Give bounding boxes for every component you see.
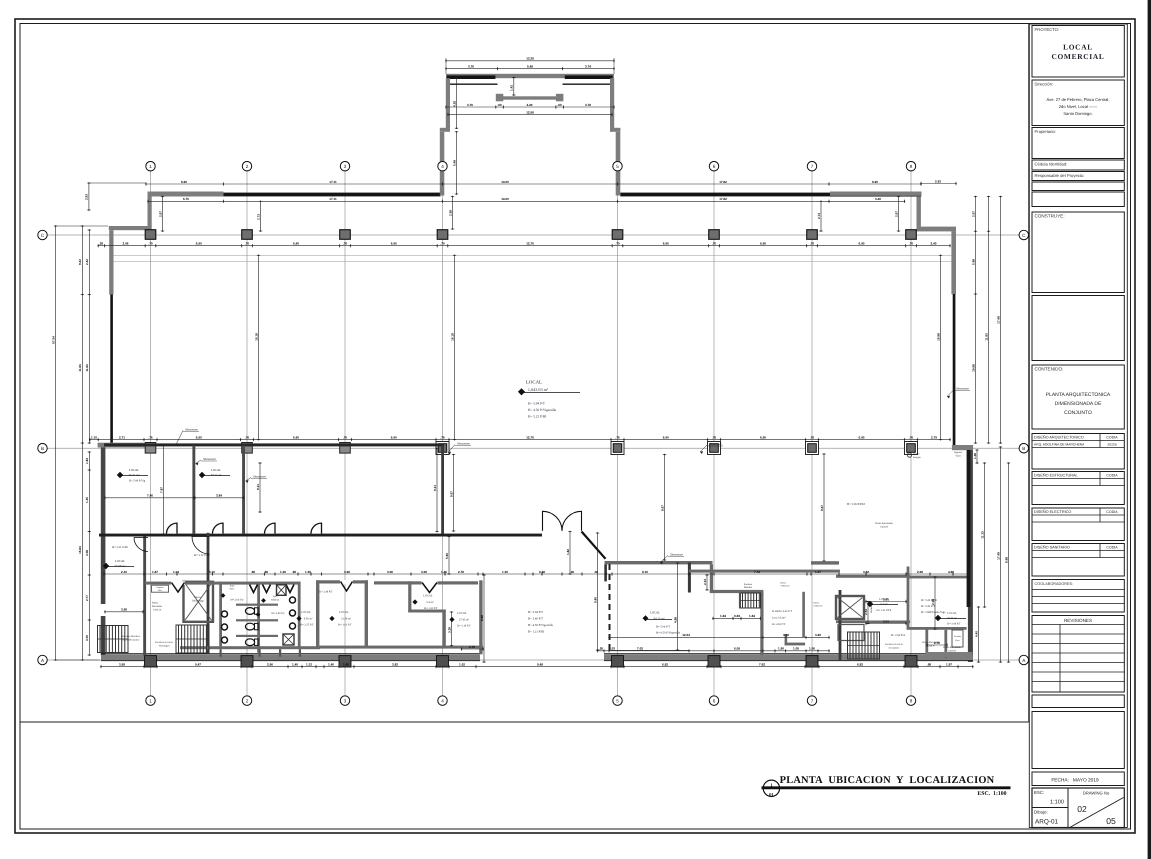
svg-text:.60: .60 xyxy=(557,103,562,107)
svg-text:36.31 m²: 36.31 m² xyxy=(129,473,140,477)
svg-text:8.20: 8.20 xyxy=(181,180,187,184)
svg-text:H= 1.21 P/FE: H= 1.21 P/FE xyxy=(877,609,892,612)
svg-text:CONJUNTO: CONJUNTO xyxy=(1064,410,1092,416)
svg-text:Elect: Elect xyxy=(955,639,960,642)
svg-text:H= 5.04 P/T: H= 5.04 P/T xyxy=(528,610,543,614)
svg-text:1,043.93 m²: 1,043.93 m² xyxy=(528,387,549,392)
svg-text:9.80: 9.80 xyxy=(593,597,597,603)
svg-text:FECHA: MAYO 2019: FECHA: MAYO 2019 xyxy=(1051,777,1099,783)
svg-text:6.90: 6.90 xyxy=(391,435,397,439)
svg-text:2.67: 2.67 xyxy=(971,211,975,217)
svg-text:DRAWING No: DRAWING No xyxy=(1083,791,1110,796)
svg-text:2.77: 2.77 xyxy=(85,595,89,601)
svg-text:6.56 m²: 6.56 m² xyxy=(304,618,313,621)
svg-text:Showroom: Showroom xyxy=(457,443,471,446)
svg-text:6.90: 6.90 xyxy=(196,242,202,246)
svg-text:20226: 20226 xyxy=(1107,443,1116,447)
svg-text:.76: .76 xyxy=(343,435,348,439)
svg-text:1.60: 1.60 xyxy=(343,662,349,666)
svg-text:0.90x2.10: 0.90x2.10 xyxy=(814,605,824,608)
svg-text:5: 5 xyxy=(616,164,619,169)
svg-text:3.76: 3.76 xyxy=(468,64,474,68)
svg-text:9.48: 9.48 xyxy=(539,570,545,574)
svg-text:14.00: 14.00 xyxy=(501,180,509,184)
svg-text:6: 6 xyxy=(713,164,716,169)
svg-text:.76: .76 xyxy=(245,435,250,439)
svg-text:H= 2.48 P/T: H= 2.48 P/T xyxy=(320,591,333,594)
svg-text:H= 5.04 P/T: H= 5.04 P/T xyxy=(528,402,546,406)
svg-text:02: 02 xyxy=(1077,804,1087,814)
svg-text:5.48: 5.48 xyxy=(527,64,533,68)
svg-text:CODIA: CODIA xyxy=(1106,510,1118,514)
svg-text:Puerta: Puerta xyxy=(813,602,819,605)
svg-text:H= 5.26 P/PLF: H= 5.26 P/PLF xyxy=(847,502,866,506)
svg-text:H= 4.50 P/Vigarailla: H= 4.50 P/Vigarailla xyxy=(656,631,681,635)
svg-text:Registro: Registro xyxy=(156,586,163,589)
svg-text:ARQ. ADOLFINA DE MARCHENA: ARQ. ADOLFINA DE MARCHENA xyxy=(1034,443,1085,447)
svg-text:2.10: 2.10 xyxy=(121,570,127,574)
svg-text:3.98: 3.98 xyxy=(121,608,127,612)
svg-text:12.76: 12.76 xyxy=(526,435,534,439)
svg-text:19.98: 19.98 xyxy=(971,364,975,372)
svg-text:4.20: 4.20 xyxy=(527,103,533,107)
svg-text:3.06: 3.06 xyxy=(421,570,427,574)
svg-text:LOCAL: LOCAL xyxy=(339,611,349,614)
svg-text:2.40: 2.40 xyxy=(931,242,937,246)
svg-text:16.18: 16.18 xyxy=(254,333,258,341)
svg-text:Responsable del Proyecto:: Responsable del Proyecto: xyxy=(1035,173,1085,178)
svg-text:3: 3 xyxy=(344,698,347,703)
svg-text:11.83: 11.83 xyxy=(78,364,82,372)
svg-text:2: 2 xyxy=(246,164,249,169)
svg-text:PLANTA ARQUITECTONICA: PLANTA ARQUITECTONICA xyxy=(1046,392,1111,398)
svg-text:LOCAL: LOCAL xyxy=(129,468,139,472)
svg-text:ARQ-01: ARQ-01 xyxy=(1035,819,1059,826)
svg-text:1.30: 1.30 xyxy=(305,570,311,574)
svg-text:Showroom: Showroom xyxy=(203,458,217,461)
svg-text:6.90: 6.90 xyxy=(293,242,299,246)
svg-text:5.10: 5.10 xyxy=(209,570,215,574)
svg-text:1.84: 1.84 xyxy=(749,614,755,618)
svg-text:Ave. 27 de Febrero, Plaza Cent: Ave. 27 de Febrero, Plaza Central, xyxy=(1047,97,1110,102)
svg-text:12.98: 12.98 xyxy=(526,110,534,114)
svg-text:1.40: 1.40 xyxy=(292,662,298,666)
svg-text:CODIA: CODIA xyxy=(1106,436,1118,440)
svg-text:3.76: 3.76 xyxy=(467,103,473,107)
svg-text:B: B xyxy=(41,446,44,451)
svg-text:H= 3.12 P/FE: H= 3.12 P/FE xyxy=(194,553,210,557)
svg-text:3: 3 xyxy=(344,164,347,169)
svg-text:3.78: 3.78 xyxy=(585,103,591,107)
svg-text:CONTENIDO:: CONTENIDO: xyxy=(1035,367,1064,372)
svg-text:Cédula Identidad:: Cédula Identidad: xyxy=(1035,162,1068,167)
svg-text:3.40: 3.40 xyxy=(875,197,881,201)
svg-text:.80: .80 xyxy=(251,570,256,574)
svg-text:H= 1.21 P/BI: H= 1.21 P/BI xyxy=(528,630,544,634)
svg-text:3.95: 3.95 xyxy=(119,662,125,666)
svg-text:.98: .98 xyxy=(927,662,932,666)
svg-text:11.83: 11.83 xyxy=(85,364,89,372)
svg-text:1:100: 1:100 xyxy=(1050,800,1064,806)
svg-text:.70: .70 xyxy=(712,242,717,246)
svg-text:Showroom: Showroom xyxy=(253,476,267,479)
svg-text:8.88: 8.88 xyxy=(480,615,484,621)
svg-text:1.87: 1.87 xyxy=(152,570,158,574)
svg-text:2.71: 2.71 xyxy=(119,435,125,439)
svg-text:1: 1 xyxy=(149,698,152,703)
svg-text:0.83: 0.83 xyxy=(734,614,740,618)
svg-text:Monacarga: Monacarga xyxy=(192,600,204,603)
svg-text:1: 1 xyxy=(149,164,152,169)
svg-text:31.30 m²: 31.30 m² xyxy=(341,618,351,621)
svg-text:1.80: 1.80 xyxy=(778,647,784,651)
svg-text:ESC. 1:100: ESC. 1:100 xyxy=(977,791,1006,797)
svg-text:2.93: 2.93 xyxy=(85,194,89,200)
svg-text:H= 5.22 P/BI: H= 5.22 P/BI xyxy=(528,415,547,419)
svg-text:LOCAL: LOCAL xyxy=(115,559,125,563)
svg-text:9.67: 9.67 xyxy=(449,491,453,497)
svg-text:Loca 0.12m²: Loca 0.12m² xyxy=(772,617,786,620)
svg-text:17.11: 17.11 xyxy=(329,197,337,201)
svg-text:DISEÑO ESTRUCTURAL: DISEÑO ESTRUCTURAL xyxy=(1034,473,1078,478)
svg-text:3.03: 3.03 xyxy=(783,633,789,637)
svg-text:Showroom: Showroom xyxy=(956,388,970,391)
svg-text:6.92: 6.92 xyxy=(662,662,668,666)
svg-text:2.58: 2.58 xyxy=(448,210,452,216)
svg-text:.70: .70 xyxy=(615,242,620,246)
svg-text:2.06: 2.06 xyxy=(123,242,129,246)
svg-text:1.46: 1.46 xyxy=(441,570,447,574)
svg-text:6.90: 6.90 xyxy=(293,435,299,439)
svg-text:2.42: 2.42 xyxy=(85,259,89,265)
svg-text:7.46: 7.46 xyxy=(147,494,153,498)
svg-text:H= 2.04 P/y: H= 2.04 P/y xyxy=(230,599,244,602)
svg-text:3.39: 3.39 xyxy=(447,627,451,633)
svg-text:2.83: 2.83 xyxy=(935,179,941,183)
svg-text:6.70: 6.70 xyxy=(183,197,189,201)
svg-text:8.98: 8.98 xyxy=(1004,557,1008,563)
svg-text:2.78: 2.78 xyxy=(469,645,475,649)
svg-text:4.88: 4.88 xyxy=(948,570,954,574)
svg-text:3.92: 3.92 xyxy=(344,570,350,574)
svg-text:2.08: 2.08 xyxy=(917,570,923,574)
svg-text:1.30: 1.30 xyxy=(280,570,286,574)
svg-text:Montacarga: Montacarga xyxy=(870,600,873,612)
svg-text:REVISIONES: REVISIONES xyxy=(1064,618,1092,623)
svg-text:H= 5.04 P/Vig: H= 5.04 P/Vig xyxy=(129,480,146,483)
svg-text:17.82: 17.82 xyxy=(719,180,727,184)
svg-text:1.84: 1.84 xyxy=(720,614,726,618)
svg-text:H= 3.86P Fondo Viga: H= 3.86P Fondo Viga xyxy=(921,611,946,614)
svg-text:6.90: 6.90 xyxy=(859,242,865,246)
svg-text:13.38: 13.38 xyxy=(526,57,534,61)
svg-text:9.48: 9.48 xyxy=(537,662,543,666)
svg-text:16.84: 16.84 xyxy=(78,546,82,554)
svg-text:Showroom: Showroom xyxy=(709,443,723,446)
svg-text:COOLABORADORES:: COOLABORADORES: xyxy=(1035,582,1074,586)
svg-text:6.90: 6.90 xyxy=(391,242,397,246)
svg-text:LOCAL: LOCAL xyxy=(650,611,660,615)
svg-text:Showroom: Showroom xyxy=(185,429,199,432)
svg-text:57.04: 57.04 xyxy=(51,336,55,344)
svg-text:H= 3.01 P/T: H= 3.01 P/T xyxy=(338,624,352,627)
svg-text:1.47: 1.47 xyxy=(815,570,821,574)
svg-text:Dibujo:: Dibujo: xyxy=(1034,810,1048,815)
svg-text:.28: .28 xyxy=(99,242,104,246)
svg-text:H= 2.54 P/A: H= 2.54 P/A xyxy=(891,634,905,637)
svg-text:6.90: 6.90 xyxy=(760,435,766,439)
svg-text:Showroom: Showroom xyxy=(670,554,684,557)
svg-text:LOCAL: LOCAL xyxy=(1063,43,1093,52)
svg-text:Celadora: Celadora xyxy=(271,598,279,601)
svg-text:H 2doN= 2.45 P/T: H 2doN= 2.45 P/T xyxy=(772,610,792,613)
svg-text:.70: .70 xyxy=(909,242,914,246)
svg-text:5.90: 5.90 xyxy=(445,553,449,559)
svg-text:7: 7 xyxy=(811,698,814,703)
svg-text:2.54: 2.54 xyxy=(864,609,868,615)
svg-text:.70: .70 xyxy=(245,242,250,246)
svg-text:6.82: 6.82 xyxy=(857,662,863,666)
svg-text:84.13 m²: 84.13 m² xyxy=(654,617,665,621)
svg-text:5.48: 5.48 xyxy=(452,160,456,166)
svg-text:DISEÑO SANITARIO: DISEÑO SANITARIO xyxy=(1034,545,1070,550)
svg-text:9.47: 9.47 xyxy=(195,662,201,666)
svg-text:Metalica: Metalica xyxy=(744,586,753,589)
svg-text:1.82: 1.82 xyxy=(566,549,570,555)
svg-text:COMERCIAL: COMERCIAL xyxy=(1051,52,1104,61)
svg-text:2.96: 2.96 xyxy=(267,662,273,666)
svg-text:Puerta: Puerta xyxy=(780,582,786,585)
svg-text:3.20: 3.20 xyxy=(815,633,821,637)
svg-text:3.82: 3.82 xyxy=(863,570,869,574)
svg-text:4.28: 4.28 xyxy=(452,101,456,107)
svg-text:3.74: 3.74 xyxy=(585,64,591,68)
svg-text:2.67: 2.67 xyxy=(158,211,162,217)
svg-text:3.08: 3.08 xyxy=(85,550,89,556)
svg-text:LOCAL: LOCAL xyxy=(947,612,957,615)
svg-text:8: 8 xyxy=(910,698,913,703)
svg-text:desague: desague xyxy=(913,456,921,459)
svg-text:.76: .76 xyxy=(810,435,815,439)
svg-text:Viani: Viani xyxy=(955,455,961,458)
svg-text:3.82: 3.82 xyxy=(392,662,398,666)
svg-text:LOCAL: LOCAL xyxy=(211,468,221,472)
svg-text:1.42: 1.42 xyxy=(510,85,514,91)
svg-text:6.09: 6.09 xyxy=(734,647,740,651)
svg-text:CONSTRUYE:: CONSTRUYE: xyxy=(1035,214,1065,219)
svg-text:12.34: 12.34 xyxy=(682,633,690,637)
svg-text:4: 4 xyxy=(441,698,444,703)
svg-text:ESC:: ESC: xyxy=(1034,790,1044,795)
svg-text:.60: .60 xyxy=(497,103,502,107)
svg-text:mezzanine: mezzanine xyxy=(889,647,901,650)
svg-text:55.98 m²: 55.98 m² xyxy=(115,564,126,568)
svg-text:16.18: 16.18 xyxy=(450,333,454,341)
svg-text:H= 2.55 P/T: H= 2.55 P/T xyxy=(300,624,314,627)
svg-text:2.73: 2.73 xyxy=(256,214,260,220)
svg-text:Cital.N: Cital.N xyxy=(928,645,935,648)
svg-text:6.90: 6.90 xyxy=(760,242,766,246)
svg-text:H= 5.26 P/PB: H= 5.26 P/PB xyxy=(921,599,937,602)
svg-text:.76: .76 xyxy=(615,435,620,439)
svg-text:H= 2.60 P/T: H= 2.60 P/T xyxy=(772,623,786,626)
svg-text:8.67: 8.67 xyxy=(660,505,664,511)
svg-text:.80: .80 xyxy=(292,570,297,574)
svg-text:H= 4.50 P/Vigarailla: H= 4.50 P/Vigarailla xyxy=(528,408,557,412)
svg-text:.70: .70 xyxy=(810,242,815,246)
svg-text:.76: .76 xyxy=(909,435,914,439)
svg-text:H= 4.50 P/Vigarailla: H= 4.50 P/Vigarailla xyxy=(528,623,554,627)
svg-text:17.11: 17.11 xyxy=(329,180,337,184)
svg-text:2.78: 2.78 xyxy=(458,570,464,574)
svg-text:0.80x2.10: 0.80x2.10 xyxy=(781,585,791,588)
svg-text:Santo Domingo.: Santo Domingo. xyxy=(1063,111,1092,116)
svg-text:Dirección:: Dirección: xyxy=(1035,82,1054,87)
svg-text:01: 01 xyxy=(769,792,774,797)
svg-text:12.76: 12.76 xyxy=(526,242,534,246)
svg-text:3.01: 3.01 xyxy=(883,619,889,623)
svg-text:CODIA: CODIA xyxy=(1106,474,1118,478)
svg-text:1.06: 1.06 xyxy=(809,647,815,651)
svg-text:2: 2 xyxy=(246,698,249,703)
svg-text:1.30: 1.30 xyxy=(502,570,508,574)
svg-text:H= 3.18 P/T: H= 3.18 P/T xyxy=(457,625,471,628)
svg-text:1.83: 1.83 xyxy=(85,458,89,464)
svg-text:DISEÑO ELECTRICO: DISEÑO ELECTRICO xyxy=(1034,509,1071,514)
svg-text:Cital.M: Cital.M xyxy=(880,526,888,529)
svg-text:6.90: 6.90 xyxy=(663,435,669,439)
svg-text:LOCAL: LOCAL xyxy=(457,612,467,615)
svg-text:LOCAL: LOCAL xyxy=(879,598,889,601)
svg-text:hacia Mezzanine: hacia Mezzanine xyxy=(123,639,141,642)
svg-text:2.67: 2.67 xyxy=(894,211,898,217)
svg-text:PROYECTO:: PROYECTO: xyxy=(1035,27,1060,32)
svg-text:8.20: 8.20 xyxy=(872,180,878,184)
svg-text:H= 3.08 P/T: H= 3.08 P/T xyxy=(947,623,961,626)
svg-text:1.10: 1.10 xyxy=(91,435,97,439)
svg-text:.40: .40 xyxy=(570,570,575,574)
svg-text:5: 5 xyxy=(616,698,619,703)
svg-text:H= 3.40 P/T: H= 3.40 P/T xyxy=(528,617,543,621)
svg-text:5.2 m²: 5.2 m² xyxy=(426,601,433,604)
svg-text:Cortador: Cortador xyxy=(954,635,962,638)
svg-text:9.42: 9.42 xyxy=(78,259,82,265)
svg-text:11.83: 11.83 xyxy=(984,333,988,341)
svg-text:H= 1.21 P/T: H= 1.21 P/T xyxy=(424,607,438,610)
svg-text:.26: .26 xyxy=(599,647,604,651)
svg-text:17.48: 17.48 xyxy=(996,552,1000,560)
svg-text:8: 8 xyxy=(910,164,913,169)
svg-text:Serv.: Serv. xyxy=(230,588,235,591)
svg-text:1.12: 1.12 xyxy=(306,662,312,666)
svg-text:DIMENSIONADA DE: DIMENSIONADA DE xyxy=(1055,401,1102,407)
svg-text:77.11 m²: 77.11 m² xyxy=(211,473,222,477)
svg-text:2.23: 2.23 xyxy=(703,579,707,585)
svg-text:1.03: 1.03 xyxy=(609,647,615,651)
svg-text:6.90: 6.90 xyxy=(196,435,202,439)
svg-text:.70: .70 xyxy=(343,242,348,246)
svg-text:05: 05 xyxy=(1106,816,1116,826)
svg-text:17.48: 17.48 xyxy=(996,316,1000,324)
svg-text:.70: .70 xyxy=(148,242,153,246)
svg-text:9.21: 9.21 xyxy=(433,485,437,491)
svg-text:Elect: Elect xyxy=(158,589,163,592)
svg-text:3.84: 3.84 xyxy=(216,494,222,498)
svg-text:1.9x3.10: 1.9x3.10 xyxy=(153,609,162,612)
svg-text:CODIA: CODIA xyxy=(1106,546,1118,550)
svg-text:.70: .70 xyxy=(440,242,445,246)
svg-text:17.82: 17.82 xyxy=(719,197,727,201)
svg-text:Cital.M: Cital.M xyxy=(948,650,956,653)
svg-text:6.90: 6.90 xyxy=(859,435,865,439)
svg-text:4.88: 4.88 xyxy=(673,617,677,623)
svg-text:PLANTA UBICACION Y LOCALIZA: PLANTA UBICACION Y LOCALIZACION xyxy=(780,775,995,786)
svg-text:7.87: 7.87 xyxy=(159,487,163,493)
svg-text:.76: .76 xyxy=(148,435,153,439)
svg-text:2do Nivel, Local ——: 2do Nivel, Local —— xyxy=(1059,104,1098,109)
svg-text:11.33: 11.33 xyxy=(980,531,984,539)
svg-text:4: 4 xyxy=(441,164,444,169)
svg-text:1.97: 1.97 xyxy=(946,662,952,666)
svg-text:LOCAL: LOCAL xyxy=(423,595,433,598)
svg-text:6.90: 6.90 xyxy=(663,242,669,246)
svg-text:H= 2.49 P/y: H= 2.49 P/y xyxy=(271,612,285,615)
svg-text:1.05: 1.05 xyxy=(793,647,799,651)
svg-text:3.00: 3.00 xyxy=(85,635,89,641)
svg-text:6: 6 xyxy=(713,698,716,703)
svg-text:9.21: 9.21 xyxy=(256,484,260,490)
svg-text:1.40: 1.40 xyxy=(328,662,334,666)
svg-text:5.98: 5.98 xyxy=(971,259,975,265)
svg-text:B: B xyxy=(1022,446,1025,451)
svg-text:H= 5.04 P/T: H= 5.04 P/T xyxy=(656,625,671,629)
svg-text:Propietario:: Propietario: xyxy=(1035,129,1056,134)
svg-text:2.73: 2.73 xyxy=(817,213,821,219)
svg-text:H= 5.26 P/T: H= 5.26 P/T xyxy=(921,605,935,608)
svg-text:H= 3.21 P/FE: H= 3.21 P/FE xyxy=(112,545,128,549)
svg-text:.76: .76 xyxy=(440,435,445,439)
svg-text:1.28: 1.28 xyxy=(973,453,977,459)
svg-text:7.72: 7.72 xyxy=(754,570,760,574)
svg-text:27.43 m²: 27.43 m² xyxy=(459,619,469,622)
svg-text:LOCAL: LOCAL xyxy=(526,380,542,386)
svg-text:7.62: 7.62 xyxy=(759,662,765,666)
svg-text:14.00: 14.00 xyxy=(501,197,509,201)
svg-text:1.02: 1.02 xyxy=(459,662,465,666)
svg-text:8.10: 8.10 xyxy=(642,570,648,574)
svg-text:.80: .80 xyxy=(264,570,269,574)
svg-text:7: 7 xyxy=(811,164,814,169)
svg-text:9.67: 9.67 xyxy=(820,505,824,511)
svg-text:3.06: 3.06 xyxy=(387,570,393,574)
svg-text:2.79: 2.79 xyxy=(931,435,937,439)
svg-text:.76: .76 xyxy=(712,435,717,439)
svg-text:1.35: 1.35 xyxy=(85,497,89,503)
svg-text:1.04: 1.04 xyxy=(173,570,179,574)
svg-text:-Hormigon: -Hormigon xyxy=(158,645,170,648)
svg-text:4.40: 4.40 xyxy=(974,631,978,637)
svg-text:DISEÑO ARQUITECTONICO: DISEÑO ARQUITECTONICO xyxy=(1034,435,1084,440)
svg-text:16.98: 16.98 xyxy=(936,333,940,341)
svg-text:7.02: 7.02 xyxy=(637,647,643,651)
svg-text:LOCAL: LOCAL xyxy=(301,611,311,614)
